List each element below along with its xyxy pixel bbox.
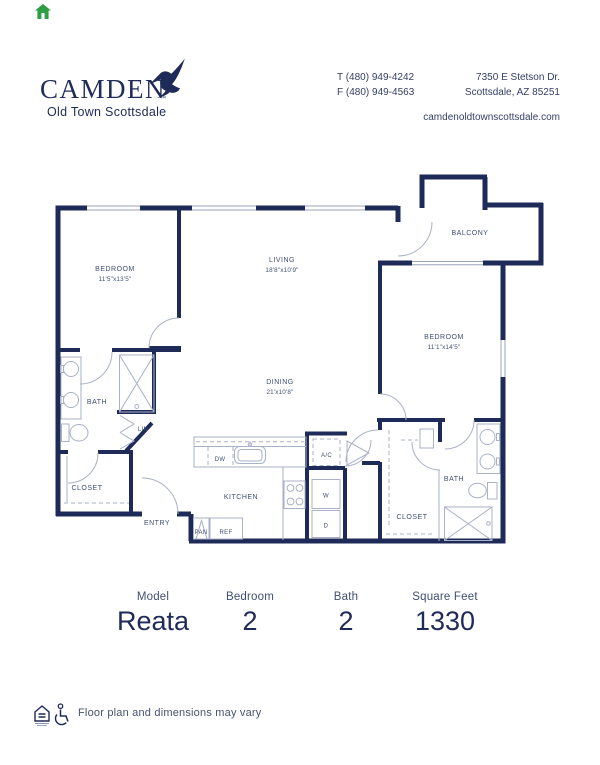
window-top-3 bbox=[305, 206, 365, 210]
summary-bath-label: Bath bbox=[291, 591, 401, 603]
door-closet1 bbox=[68, 453, 98, 483]
hummingbird-icon bbox=[148, 55, 188, 99]
label-washer: W bbox=[323, 494, 329, 500]
bath2-faucet-1 bbox=[497, 434, 500, 441]
wheelchair-head bbox=[58, 704, 62, 708]
wheelchair-body bbox=[61, 710, 69, 722]
header-phones: T (480) 949-4242 F (480) 949-4563 bbox=[337, 70, 414, 100]
label-dining: DINING bbox=[266, 379, 294, 386]
summary-bath-value: 2 bbox=[291, 606, 401, 637]
equal-housing-fineprint-2 bbox=[37, 725, 47, 726]
door-entry bbox=[142, 478, 178, 514]
floor-plan: BEDROOM 11'5"x13'5" LIVING 18'8"x10'9" B… bbox=[40, 165, 560, 565]
label-bedroom1: BEDROOM bbox=[95, 266, 135, 273]
bath2-sink-2 bbox=[480, 454, 495, 469]
summary-bedroom-label: Bedroom bbox=[195, 591, 305, 603]
summary-sqft: Square Feet 1330 bbox=[390, 591, 500, 637]
label-balcony: BALCONY bbox=[452, 230, 489, 237]
bath1-sink-2 bbox=[64, 393, 79, 408]
label-bedroom2-dims: 11'1"x14'5" bbox=[428, 344, 461, 351]
bath1-shower-x bbox=[120, 355, 155, 412]
summary-bedroom-value: 2 bbox=[195, 606, 305, 637]
equal-housing-icon bbox=[32, 703, 52, 727]
label-bedroom2: BEDROOM bbox=[424, 334, 464, 341]
balcony-slider-window bbox=[412, 262, 483, 265]
website-link: camdenoldtownscottsdale.com bbox=[423, 112, 560, 123]
wall-shower1 bbox=[117, 350, 156, 413]
bath1-shower-drain bbox=[135, 405, 139, 409]
door-bedroom2 bbox=[380, 394, 406, 420]
label-closet2: CLOSET bbox=[396, 514, 427, 521]
phone-f: F (480) 949-4563 bbox=[337, 85, 414, 100]
stove-burner-2 bbox=[296, 485, 303, 492]
wall-bottom bbox=[56, 514, 506, 541]
label-bath2: BATH bbox=[444, 476, 464, 483]
bath2-shower-x bbox=[445, 507, 493, 541]
bath1-toilet-tank bbox=[62, 424, 70, 442]
window-top-1 bbox=[87, 206, 140, 210]
home-icon-door bbox=[41, 13, 44, 19]
label-closet1: CLOSET bbox=[71, 485, 102, 492]
door-closet2 bbox=[412, 442, 440, 470]
label-lin: LIN bbox=[138, 427, 148, 433]
equal-housing-equals bbox=[39, 714, 46, 717]
label-living: LIVING bbox=[269, 257, 295, 264]
label-pan: PAN bbox=[195, 530, 208, 536]
label-dw: DW bbox=[215, 457, 226, 463]
summary-bedroom: Bedroom 2 bbox=[195, 591, 305, 637]
wall-bedroom1-east bbox=[149, 206, 181, 348]
summary-model: Model Reata bbox=[98, 591, 208, 637]
balcony-walls bbox=[378, 177, 544, 265]
header-address: 7350 E Stetson Dr. Scottsdale, AZ 85251 bbox=[465, 70, 560, 100]
label-bedroom1-dims: 11'5"x13'5" bbox=[99, 276, 132, 283]
wall-closet1 bbox=[58, 452, 133, 515]
stove-burner-1 bbox=[287, 485, 294, 492]
label-living-dims: 18'8"x10'9" bbox=[265, 267, 298, 274]
label-dryer: D bbox=[324, 524, 329, 530]
bath2-sink-1 bbox=[480, 430, 495, 445]
window-right bbox=[501, 340, 505, 377]
label-bath1: BATH bbox=[87, 399, 107, 406]
stove-burner-3 bbox=[287, 498, 294, 505]
footer-disclaimer: Floor plan and dimensions may vary bbox=[78, 707, 262, 719]
stove-burner-4 bbox=[296, 498, 303, 505]
label-ac: A/C bbox=[321, 453, 332, 459]
summary-model-value: Reata bbox=[98, 606, 208, 637]
label-dining-dims: 21'x10'8" bbox=[266, 389, 293, 396]
kitchen-sink-inner bbox=[238, 450, 262, 462]
room-labels: BEDROOM 11'5"x13'5" LIVING 18'8"x10'9" B… bbox=[71, 230, 488, 536]
door-bath2 bbox=[445, 420, 474, 449]
home-icon bbox=[35, 4, 51, 19]
summary-bath: Bath 2 bbox=[291, 591, 401, 637]
address-line1: 7350 E Stetson Dr. bbox=[465, 70, 560, 85]
logo-subtitle: Old Town Scottsdale bbox=[47, 105, 166, 119]
door-bath1 bbox=[80, 352, 112, 384]
wheelchair-accessible-icon bbox=[53, 703, 70, 727]
equal-housing-fineprint-1 bbox=[35, 723, 49, 724]
summary-sqft-label: Square Feet bbox=[390, 591, 500, 603]
door-bedroom1 bbox=[149, 318, 179, 348]
address-line2: Scottsdale, AZ 85251 bbox=[465, 85, 560, 100]
hall-niche bbox=[420, 429, 434, 448]
bath2-faucet-2 bbox=[497, 458, 500, 465]
bath1-sink-1 bbox=[64, 362, 79, 377]
bath2-toilet bbox=[469, 483, 487, 498]
bath2-shower-drain bbox=[487, 522, 491, 526]
bath1-toilet bbox=[70, 425, 88, 442]
bath1-faucet-2 bbox=[61, 397, 64, 404]
label-kitchen: KITCHEN bbox=[224, 494, 258, 501]
window-top-2 bbox=[192, 206, 256, 210]
bath1-faucet-1 bbox=[61, 366, 64, 373]
label-entry: ENTRY bbox=[144, 520, 170, 527]
bath2-toilet-tank bbox=[488, 483, 498, 500]
phone-t: T (480) 949-4242 bbox=[337, 70, 414, 85]
label-ref: REF bbox=[220, 530, 233, 536]
bath2-counter bbox=[477, 424, 500, 474]
summary-sqft-value: 1330 bbox=[390, 606, 500, 637]
door-balcony bbox=[398, 222, 432, 256]
summary-model-label: Model bbox=[98, 591, 208, 603]
